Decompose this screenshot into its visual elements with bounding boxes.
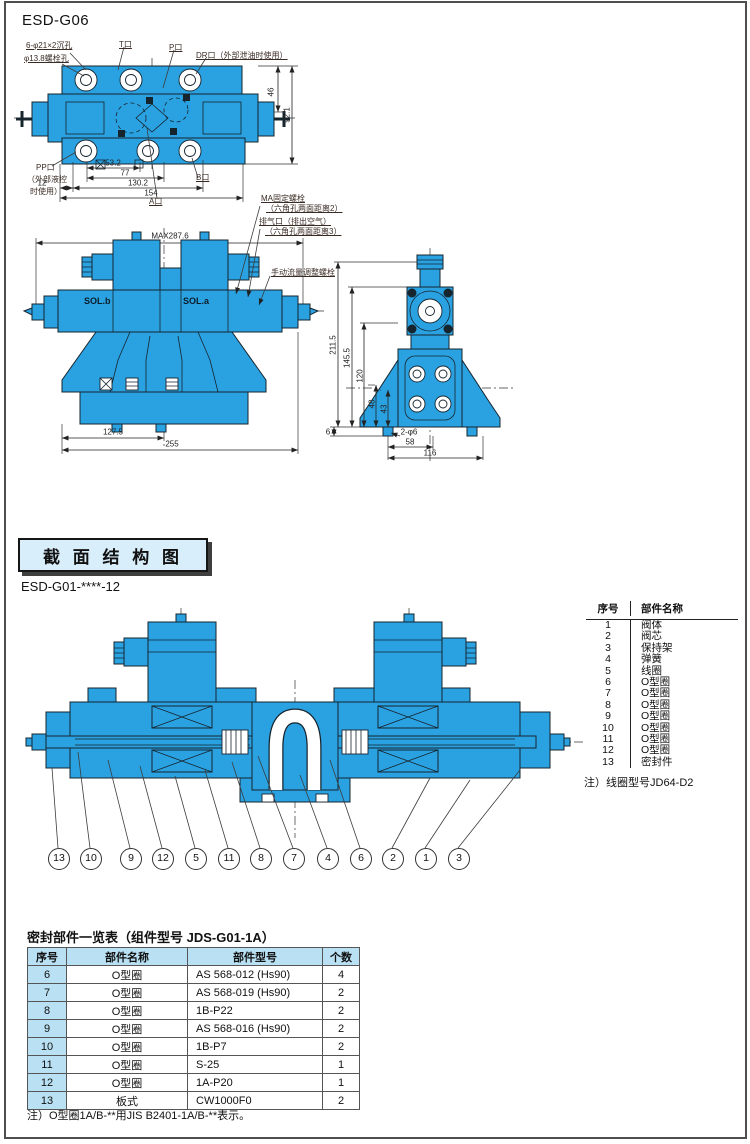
ma-bolt-label-1: MA固定螺栓: [261, 194, 305, 203]
dim-92-1: 92.1: [283, 107, 292, 123]
dim-53-2: 53.2: [105, 159, 121, 168]
seal-type: AS 568-016 (Hs90): [188, 1020, 323, 1038]
seal-header-type: 部件型号: [188, 948, 323, 966]
seal-type: 1A-P20: [188, 1074, 323, 1092]
dr-port-label: DR口（外部泄油时使用）: [196, 51, 288, 60]
seal-qty: 1: [323, 1074, 360, 1092]
parts-table-header: 序号 部件名称: [586, 601, 738, 620]
parts-table: 序号 部件名称 1阀体 2阀芯 3保持架 4弹簧 5线圈 6O型圈 7O型圈 8…: [586, 601, 738, 768]
seal-type: AS 568-012 (Hs90): [188, 966, 323, 984]
pp-port-sub1: （外部液控: [27, 175, 67, 184]
seal-table-row: 6O型圈AS 568-012 (Hs90)4: [28, 966, 360, 984]
seal-table-note: 注）O型圈1A/B-**用JIS B2401-1A/B-**表示。: [27, 1107, 250, 1123]
cross-section-drawing: [26, 608, 585, 848]
seal-parts-table: 序号 部件名称 部件型号 个数 6O型圈AS 568-012 (Hs90)4 7…: [27, 947, 360, 1110]
seal-table-row: 10O型圈1B-P72: [28, 1038, 360, 1056]
parts-header-no: 序号: [586, 601, 631, 616]
part-no: 13: [586, 757, 631, 768]
seal-qty: 4: [323, 966, 360, 984]
parts-table-row: 9O型圈: [586, 711, 738, 722]
section-model: ESD-G01-****-12: [21, 579, 120, 594]
seal-no: 8: [28, 1002, 67, 1020]
seal-table-header-row: 序号 部件名称 部件型号 个数: [28, 948, 360, 966]
seal-qty: 2: [323, 1038, 360, 1056]
seal-qty: 2: [323, 1020, 360, 1038]
seal-header-name: 部件名称: [67, 948, 188, 966]
sol-a-label: SOL.a: [183, 296, 209, 306]
dim-77: 77: [121, 169, 130, 178]
vent-label-1: 排气口（排出空气）: [259, 217, 331, 226]
seal-header-qty: 个数: [323, 948, 360, 966]
seal-no: 7: [28, 984, 67, 1002]
dim-211-5: 211.5: [329, 335, 338, 354]
manual-adjust-label: 手动流量调整螺栓: [271, 268, 335, 277]
coil-note: 注）线圈型号JD64-D2: [584, 774, 693, 790]
part-no: 12: [586, 745, 631, 756]
bolt-hole-label: φ13.8螺栓孔: [24, 54, 69, 63]
page-title-model: ESD-G06: [22, 12, 89, 29]
seal-name: O型圈: [67, 1020, 188, 1038]
dim-12: 12: [38, 179, 47, 188]
seal-name: O型圈: [67, 1038, 188, 1056]
counterbore-label: 6-φ21×2沉孔: [26, 41, 72, 50]
dim-48: 48: [368, 400, 377, 409]
dim-154: 154: [144, 189, 157, 198]
callout-6: 6: [350, 848, 372, 870]
dim-255: 255: [165, 440, 178, 449]
part-name: O型圈: [631, 711, 670, 722]
part-name: 密封件: [631, 757, 673, 768]
section-header: 截 面 结 构 图: [18, 538, 208, 572]
seal-table-row: 8O型圈1B-P222: [28, 1002, 360, 1020]
side-view-drawing: [330, 248, 514, 462]
seal-no: 6: [28, 966, 67, 984]
sol-b-label: SOL.b: [84, 296, 111, 306]
part-name: 弹簧: [631, 654, 662, 665]
a-port-label: A口: [149, 197, 162, 206]
seal-type: S-25: [188, 1056, 323, 1074]
pp-port-label: PP口: [36, 163, 55, 172]
dim-max287-6: MAX287.6: [151, 232, 188, 241]
seal-table-title: 密封部件一览表（组件型号 JDS-G01-1A）: [27, 927, 275, 946]
seal-table-row: 11O型圈S-251: [28, 1056, 360, 1074]
seal-no: 11: [28, 1056, 67, 1074]
seal-no: 10: [28, 1038, 67, 1056]
t-port-label: T口: [119, 40, 132, 49]
dim-58: 58: [406, 438, 415, 447]
seal-type: AS 568-019 (Hs90): [188, 984, 323, 1002]
callout-1: 1: [415, 848, 437, 870]
callout-10: 10: [80, 848, 102, 870]
dim-6: 6: [326, 428, 330, 437]
callout-3: 3: [448, 848, 470, 870]
front-view-drawing: [24, 206, 324, 454]
section-header-text: 截 面 结 构 图: [43, 543, 183, 568]
seal-qty: 2: [323, 1092, 360, 1110]
part-no: 4: [586, 654, 631, 665]
seal-table-row: 12O型圈1A-P201: [28, 1074, 360, 1092]
seal-name: O型圈: [67, 984, 188, 1002]
callout-4: 4: [317, 848, 339, 870]
dim-120: 120: [356, 369, 365, 382]
dim-127-5: 127.5: [103, 428, 123, 437]
parts-table-row: 4弹簧: [586, 654, 738, 665]
part-no: 9: [586, 711, 631, 722]
b-port-label: B口: [196, 173, 209, 182]
parts-table-row: 13密封件: [586, 757, 738, 768]
callout-12: 12: [152, 848, 174, 870]
seal-type: 1B-P7: [188, 1038, 323, 1056]
seal-no: 12: [28, 1074, 67, 1092]
seal-no: 9: [28, 1020, 67, 1038]
seal-qty: 2: [323, 984, 360, 1002]
dim-43: 43: [380, 405, 389, 414]
callout-5: 5: [185, 848, 207, 870]
seal-qty: 1: [323, 1056, 360, 1074]
p-port-label: P口: [169, 43, 182, 52]
seal-type: 1B-P22: [188, 1002, 323, 1020]
datasheet-page: ESD-G06 6-φ21×2沉孔 φ13.8螺栓孔 T口 P口 DR口（外部泄…: [0, 0, 750, 1144]
callout-11: 11: [218, 848, 240, 870]
parts-table-row: 12O型圈: [586, 745, 738, 756]
seal-name: O型圈: [67, 1056, 188, 1074]
dim-2-phi6: 2-φ6: [401, 428, 418, 437]
seal-qty: 2: [323, 1002, 360, 1020]
callout-8: 8: [250, 848, 272, 870]
dim-116: 116: [424, 449, 437, 458]
seal-name: O型圈: [67, 966, 188, 984]
seal-name: O型圈: [67, 1002, 188, 1020]
dim-130-2: 130.2: [128, 179, 148, 188]
parts-header-name: 部件名称: [631, 601, 683, 616]
ma-bolt-label-2: （六角孔两面距离2）: [266, 204, 342, 213]
callout-9: 9: [120, 848, 142, 870]
seal-table-row: 9O型圈AS 568-016 (Hs90)2: [28, 1020, 360, 1038]
seal-table-row: 7O型圈AS 568-019 (Hs90)2: [28, 984, 360, 1002]
callout-13: 13: [48, 848, 70, 870]
dim-145-5: 145.5: [343, 348, 352, 368]
callout-7: 7: [283, 848, 305, 870]
seal-header-no: 序号: [28, 948, 67, 966]
dim-46: 46: [267, 88, 276, 97]
pp-port-sub2: 时使用）: [30, 187, 62, 196]
part-name: O型圈: [631, 745, 670, 756]
vent-label-2: （六角孔两面距离3）: [265, 227, 341, 236]
callout-2: 2: [382, 848, 404, 870]
seal-name: O型圈: [67, 1074, 188, 1092]
